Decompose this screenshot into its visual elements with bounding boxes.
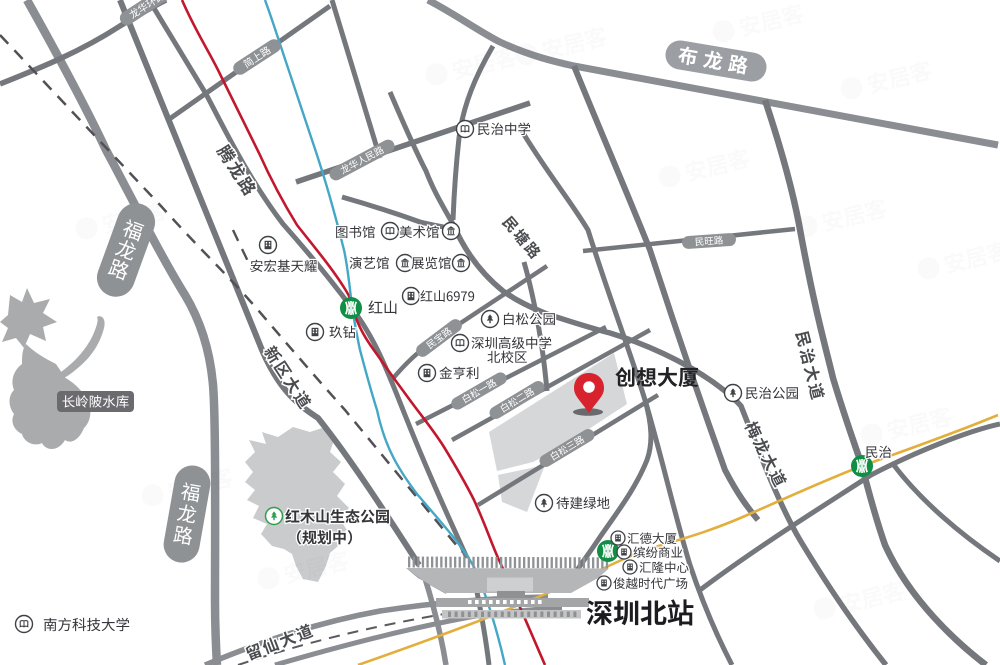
svg-text:待建绿地: 待建绿地 xyxy=(556,492,610,512)
svg-text:创想大厦: 创想大厦 xyxy=(615,362,699,392)
svg-text:红山6979: 红山6979 xyxy=(420,286,475,305)
svg-text:红山: 红山 xyxy=(368,297,398,318)
svg-text:民治中学: 民治中学 xyxy=(477,118,531,138)
svg-text:（规划中）: （规划中） xyxy=(287,527,362,548)
svg-text:白松公园: 白松公园 xyxy=(502,308,556,328)
svg-text:南方科技大学: 南方科技大学 xyxy=(43,614,130,635)
svg-text:深圳北站: 深圳北站 xyxy=(586,592,694,631)
svg-text:安宏基天耀: 安宏基天耀 xyxy=(250,255,318,275)
svg-text:演艺馆: 演艺馆 xyxy=(349,252,390,272)
svg-text:美术馆: 美术馆 xyxy=(399,221,440,241)
svg-text:金亨利: 金亨利 xyxy=(439,362,480,382)
svg-text:玖钻: 玖钻 xyxy=(329,321,356,341)
svg-text:展览馆: 展览馆 xyxy=(411,252,452,272)
svg-text:图书馆: 图书馆 xyxy=(335,221,376,241)
svg-text:民治公园: 民治公园 xyxy=(745,382,799,402)
svg-text:民旺路: 民旺路 xyxy=(694,232,724,248)
svg-text:长岭陂水库: 长岭陂水库 xyxy=(62,391,130,411)
svg-text:民治: 民治 xyxy=(865,441,892,461)
svg-text:北校区: 北校区 xyxy=(487,346,528,366)
svg-text:俊越时代广场: 俊越时代广场 xyxy=(613,573,688,592)
svg-text:红木山生态公园: 红木山生态公园 xyxy=(285,506,390,527)
